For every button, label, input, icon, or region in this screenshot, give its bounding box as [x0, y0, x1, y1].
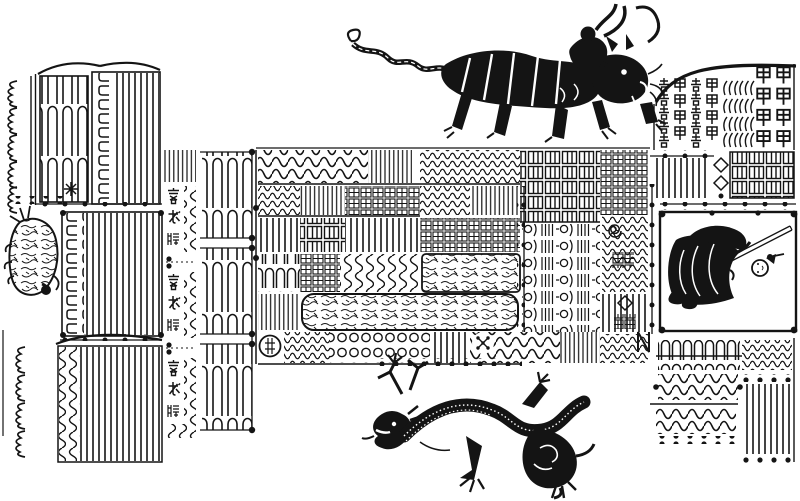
char-glyph — [169, 382, 181, 395]
seal-char-columns — [659, 67, 790, 147]
dragon-haunch — [523, 428, 577, 488]
char-glyph — [168, 274, 179, 290]
tiger-rider-figure — [348, 4, 666, 142]
deity-head — [752, 260, 768, 276]
tiger-tail-tip — [348, 30, 360, 42]
dragon-figure — [362, 353, 594, 498]
invocation-block-1 — [168, 186, 196, 252]
char-glyph — [168, 405, 179, 417]
tortoise-shell — [9, 219, 57, 295]
coin-glyph — [260, 336, 281, 357]
tortoise-figure — [5, 206, 59, 295]
right-mid-strip — [650, 150, 794, 199]
char-glyph — [169, 296, 181, 309]
sword-deity-figure — [668, 226, 792, 309]
center-talisman-band — [253, 148, 656, 366]
sword-deity-panel — [659, 202, 798, 333]
frame-dot-rule — [660, 202, 796, 210]
dragon-upper-limb — [522, 382, 548, 408]
invocation-column — [164, 150, 196, 438]
dragon-foreleg — [460, 436, 482, 480]
invocation-block-2 — [168, 272, 196, 338]
maze-panel-comb-middle — [60, 210, 164, 338]
maze-panel-comb-bottom — [58, 346, 162, 462]
char-glyph — [168, 188, 179, 204]
right-seal-block — [650, 64, 796, 199]
tiger-front-paw — [640, 102, 658, 124]
dragon-body — [404, 402, 584, 436]
char-glyph — [168, 319, 179, 331]
wave-glyph-column-bottom — [3, 330, 25, 457]
scribble-cartouche-large — [302, 294, 518, 330]
char-glyph — [169, 210, 181, 223]
char-glyph — [168, 360, 179, 376]
talisman-print-page — [0, 0, 800, 501]
tiger-tail — [353, 44, 448, 70]
star-glyph — [64, 182, 78, 196]
char-glyph — [168, 233, 179, 245]
dot-row — [8, 196, 64, 204]
tiger-ears — [606, 34, 634, 52]
rider-hook-banner — [636, 7, 659, 42]
invocation-block-3 — [168, 358, 196, 424]
wave-glyph-column-top — [8, 74, 36, 213]
scribble-cartouche-small — [422, 254, 520, 292]
talisman-print — [0, 0, 800, 501]
maze-panel-serpentine — [40, 76, 88, 202]
right-bottom-block — [638, 332, 796, 464]
rider-head — [581, 27, 596, 42]
rider-ribbons — [596, 4, 625, 36]
serpentine-column — [200, 149, 255, 433]
